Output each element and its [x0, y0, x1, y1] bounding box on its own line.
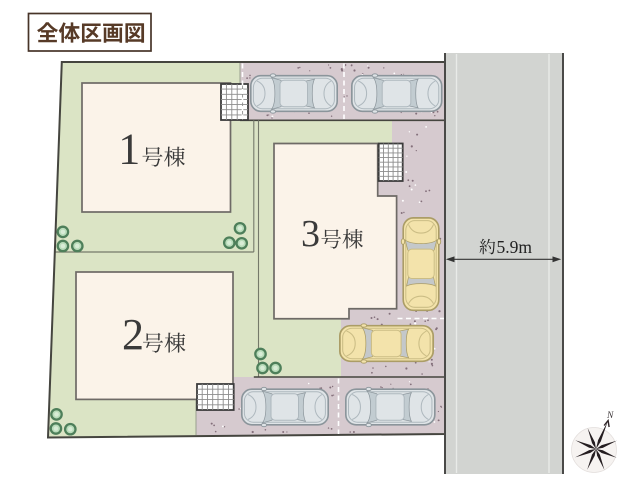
svg-text:3: 3 [301, 213, 320, 255]
svg-text:N: N [606, 411, 614, 421]
svg-text:5.9m: 5.9m [497, 237, 533, 257]
svg-text:2: 2 [122, 310, 144, 359]
svg-text:1: 1 [118, 125, 140, 174]
